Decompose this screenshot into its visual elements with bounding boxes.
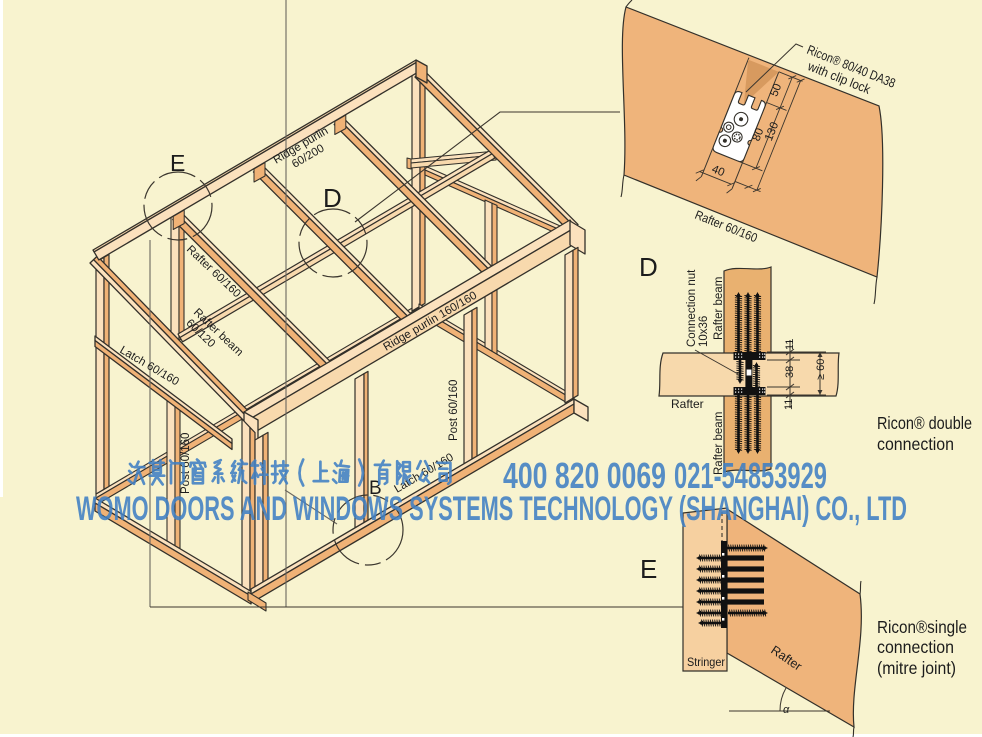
svg-text:38: 38	[784, 366, 796, 378]
svg-text:11: 11	[784, 339, 796, 350]
svg-text:connection: connection	[877, 637, 954, 657]
svg-text:α: α	[783, 704, 790, 716]
svg-text:Ricon®single: Ricon®single	[877, 617, 967, 637]
svg-text:connection: connection	[877, 434, 954, 454]
svg-text:Stringer: Stringer	[687, 655, 725, 669]
svg-text:E: E	[170, 150, 185, 176]
svg-text:Connection nut: Connection nut	[686, 269, 698, 347]
svg-text:WOMO DOORS AND WINDOWS SYSTEMS: WOMO DOORS AND WINDOWS SYSTEMS TECHNOLOG…	[76, 490, 907, 528]
svg-text:(mitre joint): (mitre joint)	[877, 658, 956, 678]
svg-text:Rafter: Rafter	[671, 397, 704, 411]
svg-text:E: E	[640, 554, 657, 584]
svg-text:D: D	[323, 183, 342, 213]
svg-text:≥ 60: ≥ 60	[815, 359, 827, 380]
svg-text:D: D	[639, 252, 658, 282]
svg-text:Ricon® double: Ricon® double	[877, 413, 972, 433]
svg-text:11: 11	[783, 399, 795, 410]
svg-text:Rafter beam: Rafter beam	[713, 277, 725, 340]
svg-text:Post 60/160: Post 60/160	[448, 380, 460, 441]
svg-text:10x36: 10x36	[698, 316, 710, 347]
